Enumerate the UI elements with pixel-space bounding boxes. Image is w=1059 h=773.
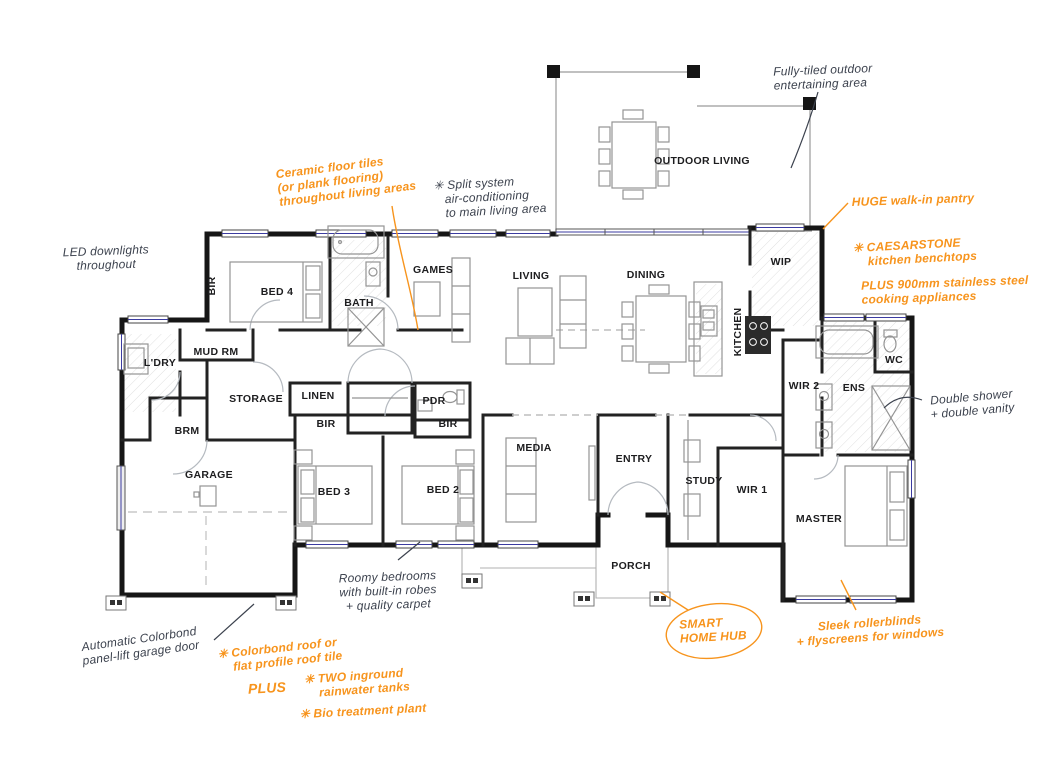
garage-dashes	[128, 512, 288, 588]
living-furniture	[506, 276, 586, 364]
leader-lines-gray	[214, 92, 922, 640]
outdoor-living-structure	[556, 72, 812, 231]
pdr-toilet	[418, 390, 464, 411]
bed4-furniture	[230, 262, 322, 322]
bed3-furniture	[294, 450, 372, 540]
study-furniture	[684, 420, 700, 540]
garage-door	[117, 466, 125, 530]
porch-slab	[462, 545, 668, 598]
outdoor-table	[599, 110, 669, 199]
master-bed	[845, 466, 907, 546]
water-heater	[194, 486, 216, 506]
sliding-doors	[556, 229, 750, 235]
door-arcs	[152, 296, 838, 515]
floorplan-drawing	[0, 0, 1059, 773]
bed2-furniture	[402, 450, 474, 540]
floorplan-canvas: BIRBED 4BATHGAMESLIVINGDININGOUTDOOR LIV…	[0, 0, 1059, 773]
smart-home-hub-circle	[663, 598, 765, 663]
cooktop	[745, 316, 771, 354]
floor-hatching	[124, 232, 910, 452]
marker-boxes	[106, 574, 670, 610]
dining-table	[622, 285, 700, 373]
furniture	[124, 110, 910, 546]
media-furniture	[506, 438, 595, 522]
